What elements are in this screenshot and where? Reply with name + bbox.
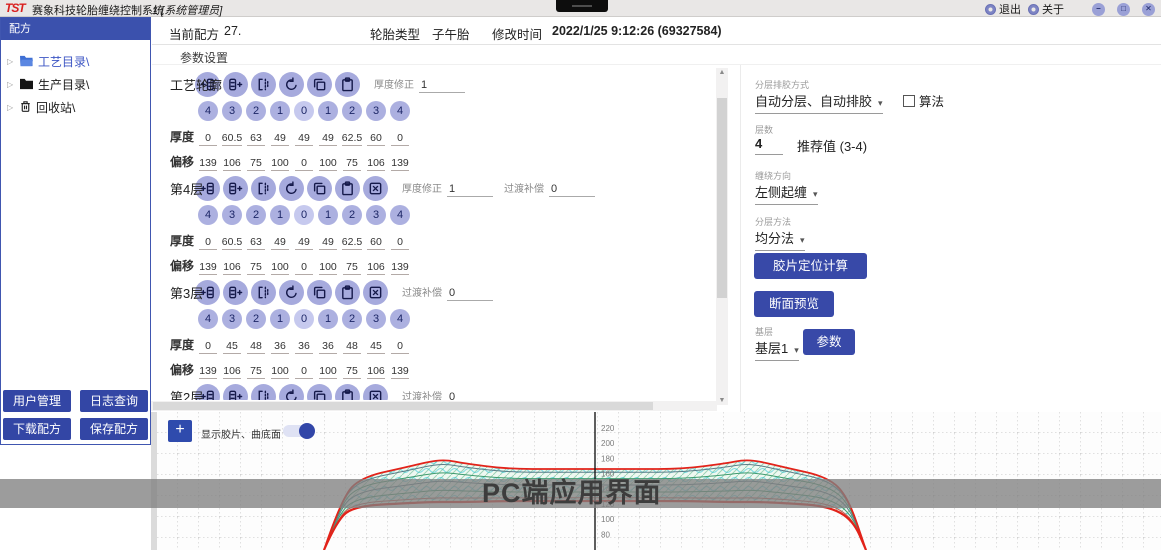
app-title: 赛象科技轮胎缠绕控制系统 [32,2,164,18]
layer-count-label: 层数 [755,123,773,136]
paste-button[interactable] [335,280,360,305]
value-input[interactable]: 100 [271,261,289,275]
param-group-label: 第3层 [170,283,203,302]
field-input[interactable]: 0 [447,287,493,301]
value-input[interactable]: 0 [199,132,217,146]
value-row: 厚度0454836363648450 [151,332,717,357]
value-input[interactable]: 139 [199,261,217,275]
toggle-label: 显示胶片、曲底面 [201,426,281,441]
value-input[interactable]: 100 [319,365,337,379]
segment-index-button[interactable]: 1 [318,101,338,121]
layer-mode-label: 分层排胶方式 [755,78,809,91]
value-input[interactable]: 75 [247,365,265,379]
segment-index-button[interactable]: 4 [390,205,410,225]
value-row: 厚度060.56349494962.5600 [151,124,717,149]
value-row: 偏移13910675100010075106139 [151,253,717,278]
segment-index-button[interactable]: 1 [270,205,290,225]
expand-arrow-icon[interactable]: ▷ [7,103,19,112]
user-management-button[interactable]: 用户管理 [3,390,71,412]
value-input[interactable]: 139 [391,157,409,171]
value-input[interactable]: 139 [391,365,409,379]
sidebar-header: 配方 [1,18,150,40]
svg-text:100: 100 [601,515,615,524]
exit-button[interactable]: 退出 [985,1,1021,17]
param-group-toolbar: 第2层过渡补偿0 [151,382,717,400]
titlebar: TST 赛象科技轮胎缠绕控制系统 1 [系统管理员] 退出 关于 – □ ✕ [0,0,1161,17]
toggle-knob-icon [299,423,315,439]
value-input[interactable]: 75 [247,157,265,171]
segment-index-button[interactable]: 4 [390,309,410,329]
horizontal-scroll-thumb[interactable] [153,402,653,410]
segment-index-button[interactable]: 4 [198,205,218,225]
segment-index-button[interactable]: 2 [246,205,266,225]
segment-index-button[interactable]: 0 [294,101,314,121]
value-row: 偏移13910675100010075106139 [151,357,717,382]
trash-icon [19,99,36,116]
segment-index-button[interactable]: 1 [270,309,290,329]
value-input[interactable]: 106 [223,157,241,171]
segment-index-button[interactable]: 4 [198,101,218,121]
value-input[interactable]: 62.5 [342,132,362,146]
paste-button[interactable] [335,176,360,201]
recipe-value: 27. [224,24,241,38]
download-recipe-button[interactable]: 下载配方 [3,418,71,440]
info-icon [1028,4,1039,15]
vertical-scrollbar[interactable]: ▲ ▼ [716,68,728,405]
delete-button[interactable] [363,384,388,401]
base-layer-label: 基层 [755,325,773,338]
tree-item-label: 回收站\ [36,99,75,116]
value-input[interactable]: 75 [247,261,265,275]
segment-index-button[interactable]: 3 [366,205,386,225]
value-input[interactable]: 0 [295,365,313,379]
tire-type-value: 子午胎 [432,24,470,43]
value-row-label: 厚度 [170,128,194,145]
value-row-label: 偏移 [170,361,194,378]
app-window: TST 赛象科技轮胎缠绕控制系统 1 [系统管理员] 退出 关于 – □ ✕ 配… [0,0,1161,550]
field-input[interactable]: 0 [447,391,493,401]
value-input[interactable]: 60 [367,132,385,146]
value-input[interactable]: 106 [367,157,385,171]
value-input[interactable]: 49 [295,132,313,146]
modified-label: 修改时间 [492,24,542,43]
value-input[interactable]: 49 [319,236,337,250]
value-input[interactable]: 45 [367,340,385,354]
horizontal-scrollbar[interactable] [151,401,717,411]
field-input[interactable]: 0 [549,183,595,197]
power-icon [985,4,996,15]
segment-index-button[interactable]: 3 [366,101,386,121]
vertical-scroll-thumb[interactable] [717,98,727,298]
value-input[interactable]: 60.5 [222,132,242,146]
segment-index-button[interactable]: 3 [222,205,242,225]
modified-value: 2022/1/25 9:12:26 (69327584) [552,24,722,38]
show-film-toggle[interactable] [283,425,313,437]
value-row: 厚度060.56349494962.5600 [151,228,717,253]
field-label: 厚度修正 [402,180,442,195]
chart-toolbar: + 显示胶片、曲底面 [157,412,557,448]
value-input[interactable]: 49 [271,132,289,146]
method-select[interactable]: 均分法▾ [755,228,805,251]
param-group-toolbar: 工艺轮廓厚度修正1 [151,70,717,98]
segment-index-button[interactable]: 2 [342,309,362,329]
mirror-button[interactable] [251,72,276,97]
segment-index-button[interactable]: 4 [390,101,410,121]
rotate-button[interactable] [279,176,304,201]
param-group-label: 第4层 [170,179,203,198]
screen-notch [556,0,608,12]
field-label: 厚度修正 [374,76,414,91]
value-input[interactable]: 49 [319,132,337,146]
value-input[interactable]: 62.5 [342,236,362,250]
sidebar-buttons: 用户管理日志查询下载配方保存配方 [1,390,150,440]
insert-right-button[interactable] [223,176,248,201]
tree-item-label: 生产目录\ [38,76,89,93]
value-input[interactable]: 48 [343,340,361,354]
value-input[interactable]: 45 [223,340,241,354]
watermark-text: PC端应用界面 [482,478,662,508]
value-input[interactable]: 100 [319,157,337,171]
paste-button[interactable] [335,384,360,401]
svg-text:180: 180 [601,454,615,463]
value-input[interactable]: 75 [343,365,361,379]
param-group-label: 第2层 [170,387,203,401]
chevron-down-icon: ▾ [878,98,883,108]
segment-index-row: 432101234 [151,98,717,124]
expand-arrow-icon[interactable]: ▷ [7,57,19,66]
tree-item[interactable]: ▷回收站\ [1,96,150,119]
scroll-up-icon[interactable]: ▲ [716,69,728,76]
folder-icon [19,77,38,93]
value-input[interactable]: 36 [319,340,337,354]
value-input[interactable]: 106 [367,261,385,275]
layer-count-input[interactable]: 4 [755,136,783,155]
copy-button[interactable] [307,72,332,97]
value-input[interactable]: 0 [199,340,217,354]
insert-right-button[interactable] [223,72,248,97]
segment-index-button[interactable]: 2 [246,101,266,121]
value-row-label: 厚度 [170,336,194,353]
value-input[interactable]: 36 [271,340,289,354]
value-input[interactable]: 106 [367,365,385,379]
svg-text:200: 200 [601,439,615,448]
direction-label: 缠绕方向 [755,169,791,182]
segment-index-button[interactable]: 4 [198,309,218,329]
expand-arrow-icon[interactable]: ▷ [7,80,19,89]
paste-button[interactable] [335,72,360,97]
insert-right-button[interactable] [223,384,248,401]
layer-settings-panel: 分层排胶方式 自动分层、自动排胶▾ 算法 层数 4 推荐值 (3-4) 缠绕方向… [740,65,1161,412]
segment-index-button[interactable]: 0 [294,205,314,225]
value-input[interactable]: 106 [223,365,241,379]
field-label: 过渡补偿 [504,180,544,195]
recommend-text: 推荐值 (3-4) [797,136,867,155]
param-group-label: 工艺轮廓 [170,75,222,94]
algorithm-checkbox[interactable]: 算法 [903,91,944,110]
chevron-down-icon: ▾ [813,189,818,199]
value-input[interactable]: 49 [295,236,313,250]
insert-right-button[interactable] [223,280,248,305]
delete-button[interactable] [363,176,388,201]
value-row: 偏移13910675100010075106139 [151,149,717,174]
value-input[interactable]: 0 [199,236,217,250]
rotate-button[interactable] [279,72,304,97]
chevron-down-icon: ▾ [800,235,805,245]
folder-open-icon [19,54,38,70]
chevron-down-icon: ▾ [794,345,799,355]
value-input[interactable]: 139 [199,157,217,171]
value-row-label: 偏移 [170,153,194,170]
value-input[interactable]: 0 [295,261,313,275]
about-button[interactable]: 关于 [1028,1,1064,17]
app-subtitle: 1 [系统管理员] [152,2,222,18]
param-field: 过渡补偿0 [402,284,493,301]
segment-index-row: 432101234 [151,306,717,332]
param-group-toolbar: 第4层厚度修正1过渡补偿0 [151,174,717,202]
rotate-button[interactable] [279,384,304,401]
checkbox-icon [903,95,915,107]
value-row-label: 偏移 [170,257,194,274]
svg-text:220: 220 [601,424,615,433]
field-input[interactable]: 1 [419,79,465,93]
value-input[interactable]: 106 [223,261,241,275]
copy-button[interactable] [307,384,332,401]
field-label: 过渡补偿 [402,388,442,401]
section-preview-button[interactable]: 断面预览 [754,291,834,317]
value-input[interactable]: 75 [343,261,361,275]
param-field: 过渡补偿0 [402,388,493,401]
base-params-button[interactable]: 参数 [803,329,855,355]
segment-index-button[interactable]: 0 [294,309,314,329]
value-input[interactable]: 100 [319,261,337,275]
delete-button[interactable] [363,280,388,305]
segment-index-button[interactable]: 1 [318,205,338,225]
value-input[interactable]: 75 [343,157,361,171]
segment-index-button[interactable]: 3 [222,309,242,329]
segment-index-button[interactable]: 1 [270,101,290,121]
recipe-tree: ▷工艺目录\▷生产目录\▷回收站\ [1,40,150,119]
value-input[interactable]: 100 [271,365,289,379]
recipe-label: 当前配方 [169,24,219,43]
param-group-toolbar: 第3层过渡补偿0 [151,278,717,306]
close-button[interactable]: ✕ [1142,3,1155,16]
segment-index-row: 432101234 [151,202,717,228]
value-input[interactable]: 0 [295,157,313,171]
brand-logo: TST [5,1,25,15]
value-input[interactable]: 0 [391,132,409,146]
segment-index-button[interactable]: 2 [342,101,362,121]
copy-button[interactable] [307,176,332,201]
value-input[interactable]: 63 [247,236,265,250]
value-row-label: 厚度 [170,232,194,249]
layer-mode-select[interactable]: 自动分层、自动排胶▾ [755,91,883,114]
svg-text:80: 80 [601,530,610,539]
sidebar: 配方 ▷工艺目录\▷生产目录\▷回收站\ 用户管理日志查询下载配方保存配方 [0,17,151,445]
direction-select[interactable]: 左侧起缠▾ [755,182,818,205]
value-input[interactable]: 100 [271,157,289,171]
maximize-button[interactable]: □ [1117,3,1130,16]
tree-item[interactable]: ▷工艺目录\ [1,50,150,73]
method-label: 分层方法 [755,215,791,228]
field-input[interactable]: 1 [447,183,493,197]
tree-item[interactable]: ▷生产目录\ [1,73,150,96]
mirror-button[interactable] [251,280,276,305]
segment-index-button[interactable]: 3 [366,309,386,329]
value-input[interactable]: 0 [391,340,409,354]
mirror-button[interactable] [251,176,276,201]
value-input[interactable]: 139 [391,261,409,275]
parameters-panel: 工艺轮廓厚度修正1432101234厚度060.56349494962.5600… [151,70,717,400]
mirror-button[interactable] [251,384,276,401]
log-query-button[interactable]: 日志查询 [80,390,148,412]
recipe-info-bar: 当前配方 27. 轮胎类型 子午胎 修改时间 2022/1/25 9:12:26… [152,17,1161,45]
value-input[interactable]: 36 [295,340,313,354]
save-recipe-button[interactable]: 保存配方 [80,418,148,440]
value-input[interactable]: 49 [271,236,289,250]
value-input[interactable]: 48 [247,340,265,354]
value-input[interactable]: 0 [391,236,409,250]
value-input[interactable]: 60.5 [222,236,242,250]
field-label: 过渡补偿 [402,284,442,299]
minimize-button[interactable]: – [1092,3,1105,16]
watermark-band: PC端应用界面 [0,479,1161,508]
param-field: 厚度修正1 [374,76,465,93]
tree-item-label: 工艺目录\ [38,53,89,70]
add-layer-button[interactable]: + [168,420,192,442]
value-input[interactable]: 60 [367,236,385,250]
film-position-calc-button[interactable]: 胶片定位计算 [754,253,867,279]
rotate-button[interactable] [279,280,304,305]
value-input[interactable]: 139 [199,365,217,379]
param-field: 过渡补偿0 [504,180,595,197]
segment-index-button[interactable]: 2 [246,309,266,329]
segment-index-button[interactable]: 3 [222,101,242,121]
scroll-down-icon[interactable]: ▼ [716,397,728,404]
copy-button[interactable] [307,280,332,305]
tire-type-label: 轮胎类型 [370,24,420,43]
base-layer-select[interactable]: 基层1▾ [755,338,799,361]
value-input[interactable]: 63 [247,132,265,146]
segment-index-button[interactable]: 2 [342,205,362,225]
param-field: 厚度修正1 [402,180,493,197]
segment-index-button[interactable]: 1 [318,309,338,329]
